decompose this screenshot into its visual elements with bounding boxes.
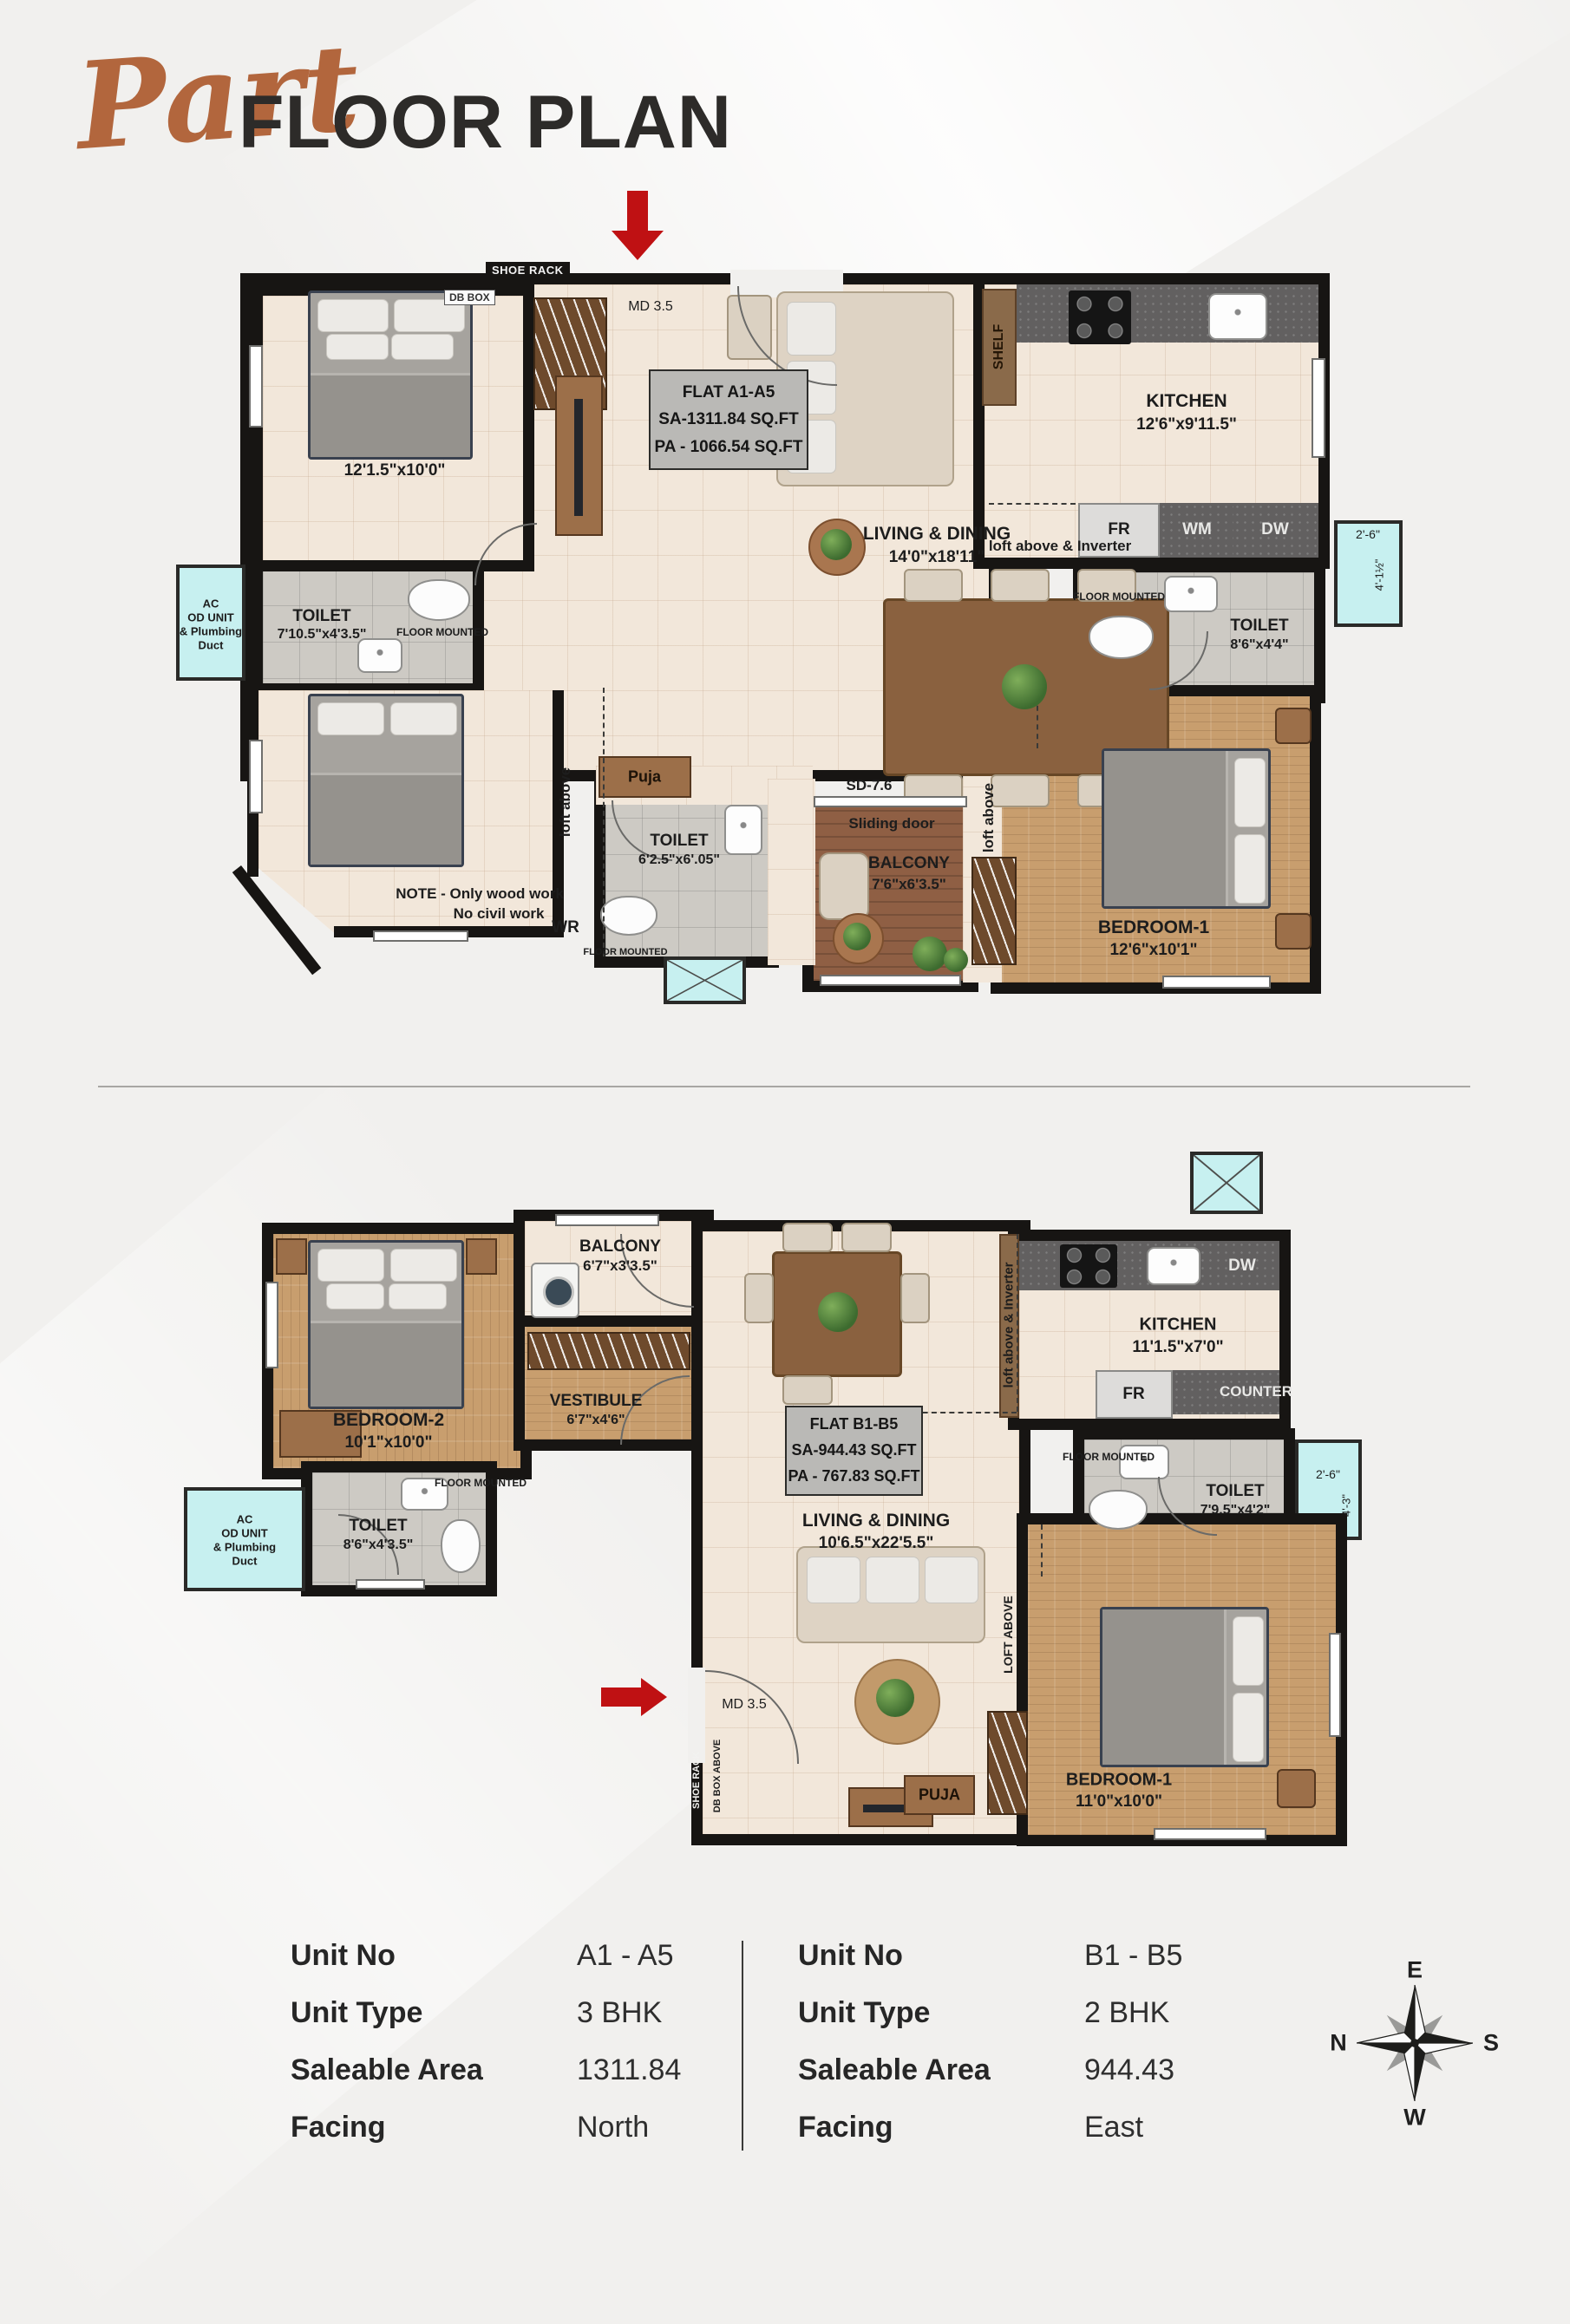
dining-chair	[991, 774, 1050, 807]
kitchen-label: KITCHEN	[1140, 1315, 1217, 1335]
sliding-window	[814, 796, 967, 807]
db-box-above-label: DB BOX ABOVE	[712, 1740, 723, 1813]
pillow	[317, 1249, 384, 1282]
wardrobe	[971, 857, 1017, 965]
unit-type-value: 3 BHK	[577, 1996, 662, 2030]
sofa	[796, 1546, 985, 1643]
unit-no-value: B1 - B5	[1084, 1939, 1182, 1973]
sofa-cushion	[807, 1557, 860, 1603]
nightstand	[1277, 1769, 1316, 1808]
toilet-left-label: TOILET	[292, 607, 350, 626]
bed	[308, 1240, 464, 1409]
kitchen-dims: 11'1.5"x7'0"	[1132, 1338, 1223, 1357]
floor-plan-a: SHOE RACK DB BOX MD 3.5 FLAT A1-A5 SA-13…	[165, 258, 1431, 1009]
ac-duct-label: Duct	[199, 639, 224, 652]
unit-no-label: Unit No	[798, 1939, 1084, 1973]
spec-row: Saleable Area 944.43	[798, 2051, 1182, 2089]
balcony-label: BALCONY	[579, 1237, 661, 1257]
duvet	[1102, 1609, 1227, 1765]
flat-a-info-box: FLAT A1-A5 SA-1311.84 SQ.FT PA - 1066.54…	[649, 369, 808, 470]
unit-no-label: Unit No	[291, 1939, 577, 1973]
entrance-opening	[688, 1668, 705, 1763]
tv	[574, 399, 583, 516]
floor-mounted-label: FLOOR MOUNTED	[1073, 591, 1165, 603]
pillow	[390, 1249, 457, 1282]
loft-above-label: loft above	[980, 783, 998, 852]
vestibule-dims: 6'7"x4'6"	[566, 1413, 625, 1428]
spec-row: Unit No B1 - B5	[798, 1936, 1182, 1975]
kitchen-dims: 12'6"x9'11.5"	[1136, 415, 1237, 434]
stove-icon	[1060, 1244, 1117, 1288]
dining-chair	[900, 1273, 930, 1323]
sliding-door-label: Sliding door	[848, 815, 934, 832]
note-line2: No civil work	[454, 905, 545, 923]
toilet-sink	[1164, 576, 1218, 612]
loft-inverter-label: loft above & Inverter	[989, 538, 1131, 555]
bed	[308, 694, 464, 867]
pillow	[1233, 1616, 1264, 1686]
kitchen-sink	[1147, 1247, 1200, 1285]
sofa-cushion	[866, 1557, 919, 1603]
centerpiece-plant	[818, 1292, 858, 1332]
dining-chair	[904, 569, 963, 602]
window	[1154, 1828, 1266, 1840]
flat-b-pa: PA - 767.83 SQ.FT	[788, 1464, 919, 1490]
entry-arrow-down-icon	[627, 191, 648, 232]
toilet-right-dims: 8'6"x4'4"	[1230, 637, 1288, 653]
bedroom1-dims: 11'0"x10'0"	[1076, 1792, 1162, 1812]
pillow	[326, 1283, 384, 1309]
wr-label: WR	[552, 918, 579, 937]
wardrobe	[527, 1332, 690, 1370]
pillow	[1234, 758, 1266, 827]
facing-label: Facing	[291, 2111, 577, 2144]
window	[1312, 358, 1325, 458]
bedroom2-label: BEDROOM-2	[333, 1410, 444, 1431]
bedroom1-label: BEDROOM-1	[1098, 917, 1209, 938]
toilet-sink	[724, 805, 762, 855]
puja-label: Puja	[628, 768, 661, 787]
plant	[821, 529, 852, 560]
dining-chair	[782, 1375, 833, 1405]
pillow	[389, 1283, 447, 1309]
flat-b-sa: SA-944.43 SQ.FT	[791, 1438, 916, 1464]
balcony-dims: 6'7"x3'3.5"	[583, 1257, 657, 1275]
unit-type-label: Unit Type	[291, 1996, 577, 2030]
bed	[1102, 748, 1271, 909]
dining-chair	[991, 569, 1050, 602]
bedroom1-dims: 12'6"x10'1"	[1109, 941, 1197, 960]
kitchen-sink	[1208, 293, 1267, 340]
stove-icon	[1069, 290, 1131, 344]
kitchen-label: KITCHEN	[1146, 391, 1227, 412]
flat-b-info-box: FLAT B1-B5 SA-944.43 SQ.FT PA - 767.83 S…	[785, 1406, 923, 1496]
shoe-rack-label: SHOE RACK	[691, 1752, 702, 1809]
loft-dashed-line	[603, 688, 605, 956]
spec-row: Facing East	[798, 2108, 1182, 2146]
nightstand	[466, 1238, 497, 1275]
floor-plan-b: BEDROOM-2 10'1"x10'0" BALCONY 6'7"x3'3.5…	[182, 1152, 1379, 1845]
corridor-patch	[768, 779, 815, 965]
main-door-label: MD 3.5	[722, 1697, 767, 1713]
spec-divider	[742, 1941, 743, 2151]
toilet-right-label: TOILET	[1206, 1482, 1264, 1501]
entry-arrow-right-icon	[641, 1678, 667, 1716]
washing-machine	[531, 1263, 579, 1318]
toilet-wc	[1089, 616, 1154, 659]
toilet-wc	[441, 1519, 481, 1573]
lounge-chair	[819, 852, 869, 920]
saleable-area-label: Saleable Area	[798, 2053, 1084, 2087]
toilet-sink	[357, 638, 402, 673]
tv-console	[555, 375, 603, 536]
note-line1: NOTE - Only wood work	[396, 885, 564, 903]
page-title: FLOOR PLAN	[239, 80, 732, 166]
loft-dashed-line	[1017, 1234, 1018, 1412]
duct-height-dim: 4'-3"	[1340, 1494, 1353, 1517]
toilet-left-dims: 7'10.5"x4'3.5"	[278, 627, 367, 643]
unit-no-value: A1 - A5	[577, 1939, 674, 1973]
ac-duct-label: AC	[203, 597, 219, 610]
spec-column-a: Unit No A1 - A5 Unit Type 3 BHK Saleable…	[291, 1936, 681, 2165]
spec-row: Saleable Area 1311.84	[291, 2051, 681, 2089]
balcony-label: BALCONY	[868, 854, 950, 873]
loft-dashed-line	[1041, 1524, 1043, 1577]
window	[1329, 1633, 1341, 1737]
plant	[944, 948, 968, 972]
duct-width-dim: 2'-6"	[1356, 527, 1380, 541]
fridge-label: FR	[1122, 1385, 1144, 1404]
bed	[1100, 1607, 1269, 1767]
spec-row: Unit No A1 - A5	[291, 1936, 681, 1975]
dw-label: DW	[1228, 1257, 1256, 1276]
living-dims: 10'6.5"x22'5.5"	[819, 1534, 934, 1553]
centerpiece-plant	[1002, 664, 1047, 709]
dining-chair	[744, 1273, 774, 1323]
puja-label: PUJA	[919, 1786, 960, 1805]
duvet	[311, 773, 461, 865]
window	[265, 1282, 278, 1368]
toilet-wc	[1089, 1490, 1148, 1530]
flat-a-sa: SA-1311.84 SQ.FT	[658, 406, 799, 433]
window	[1162, 976, 1271, 989]
ac-duct-label: AC	[237, 1513, 253, 1526]
spec-column-b: Unit No B1 - B5 Unit Type 2 BHK Saleable…	[798, 1936, 1182, 2165]
nightstand	[276, 1238, 307, 1275]
wm-label: WM	[1182, 520, 1212, 539]
living-dims: 14'0"x18'11"	[889, 548, 985, 567]
plan-a-shaft	[664, 956, 746, 1004]
duvet	[1104, 751, 1228, 906]
toilet-left-dims: 8'6"x4'3.5"	[343, 1537, 414, 1553]
dining-chair	[782, 1223, 833, 1252]
ac-duct-label: OD UNIT	[187, 611, 233, 624]
window	[356, 1579, 425, 1590]
ac-duct-label: & Plumbing	[180, 625, 242, 638]
pillow	[317, 702, 384, 735]
bedroom-tl-dims: 12'1.5"x10'0"	[344, 461, 446, 480]
duct-width-dim: 2'-6"	[1316, 1467, 1340, 1481]
spec-row: Unit Type 2 BHK	[798, 1994, 1182, 2032]
nightstand	[1275, 913, 1312, 950]
compass-south: S	[1483, 2030, 1499, 2057]
wm-drum	[543, 1276, 574, 1308]
fridge-label: FR	[1108, 520, 1129, 539]
floor-mounted-label: FLOOR MOUNTED	[396, 626, 488, 640]
compass-north: N	[1330, 2030, 1347, 2057]
plant	[843, 923, 871, 950]
spec-row: Unit Type 3 BHK	[291, 1994, 681, 2032]
spec-row: Facing North	[291, 2108, 681, 2146]
toilet-wc	[408, 579, 470, 621]
sliding-door-tag: SD-7.6	[847, 777, 893, 794]
sofa-cushion	[925, 1557, 978, 1603]
pillow	[391, 334, 454, 360]
duvet	[311, 1321, 461, 1407]
window	[373, 930, 468, 942]
dining-chair	[841, 1223, 892, 1252]
bed	[308, 290, 473, 460]
ac-duct-label: Duct	[232, 1555, 258, 1568]
entry-arrow-right-icon	[601, 1688, 641, 1707]
toilet-wc	[600, 896, 657, 936]
ac-duct-label: OD UNIT	[221, 1527, 267, 1540]
flat-b-name: FLAT B1-B5	[810, 1412, 899, 1438]
toilet-mid-dims: 6'2.5"x6'.05"	[638, 852, 720, 868]
loft-dashed-line	[989, 503, 1076, 505]
duct-height-dim: 4'-1½"	[1373, 559, 1386, 591]
flat-a-pa: PA - 1066.54 SQ.FT	[654, 434, 802, 460]
plant	[913, 937, 947, 971]
nightstand	[1275, 708, 1312, 744]
pillow	[317, 299, 389, 332]
flat-a-name: FLAT A1-A5	[683, 379, 775, 406]
pillow	[1234, 834, 1266, 904]
toilet-mid-label: TOILET	[650, 832, 708, 851]
pillow	[390, 702, 457, 735]
floor-mounted-label: FLOOR MOUNTED	[583, 947, 667, 957]
balcony-dims: 7'6"x6'3.5"	[872, 876, 946, 893]
duvet	[311, 373, 470, 457]
compass-rose: E N S W	[1349, 1977, 1481, 2109]
compass-star-icon	[1349, 1977, 1481, 2109]
facing-value: East	[1084, 2111, 1143, 2144]
shelf-label: SHELF	[991, 324, 1007, 369]
saleable-area-value: 944.43	[1084, 2053, 1174, 2087]
window	[249, 740, 263, 813]
facing-value: North	[577, 2111, 649, 2144]
wardrobe	[987, 1711, 1028, 1815]
loft-above-label: loft above	[557, 767, 574, 837]
facing-label: Facing	[798, 2111, 1084, 2144]
window	[249, 345, 263, 428]
pillow	[1233, 1693, 1264, 1762]
loft-above-label: LOFT ABOVE	[1001, 1596, 1015, 1674]
counter-label: COUNTER	[1220, 1383, 1292, 1400]
dw-label: DW	[1261, 520, 1289, 539]
balcony-rail	[820, 975, 961, 986]
bedroom2-dims: 10'1"x10'0"	[344, 1433, 432, 1452]
kitchen-counter	[1017, 284, 1318, 343]
saleable-area-label: Saleable Area	[291, 2053, 577, 2087]
vestibule-label: VESTIBULE	[550, 1392, 643, 1411]
bedroom1-label: BEDROOM-1	[1066, 1771, 1172, 1791]
plans-divider	[98, 1086, 1470, 1087]
living-label: LIVING & DINING	[802, 1511, 950, 1531]
compass-east: E	[1407, 1957, 1423, 1984]
shoe-rack-label: SHOE RACK	[486, 262, 570, 278]
unit-type-value: 2 BHK	[1084, 1996, 1169, 2030]
plan-b-shaft	[1190, 1152, 1263, 1214]
toilet-right-label: TOILET	[1230, 617, 1288, 636]
toilet-right-dims: 7'9.5"x4'2"	[1200, 1503, 1271, 1518]
ac-duct-label: & Plumbing	[213, 1541, 276, 1554]
entry-arrow-down-icon	[612, 231, 664, 260]
floor-mounted-label: FLOOR MOUNTED	[435, 1477, 527, 1489]
floor-mounted-label: FLOOR MOUNTED	[1063, 1451, 1155, 1463]
window	[555, 1214, 659, 1226]
floor-plan-page: { "title": {"script": "Part", "main": "F…	[0, 0, 1570, 2220]
db-box-label: DB BOX	[444, 290, 495, 305]
saleable-area-value: 1311.84	[577, 2053, 681, 2087]
unit-type-label: Unit Type	[798, 1996, 1084, 2030]
toilet-left-label: TOILET	[349, 1517, 407, 1536]
compass-west: W	[1403, 2105, 1425, 2131]
plant	[876, 1679, 914, 1717]
main-door-label: MD 3.5	[628, 299, 673, 315]
loft-inverter-label: loft above & Inverter	[1002, 1262, 1017, 1387]
pillow	[326, 334, 389, 360]
